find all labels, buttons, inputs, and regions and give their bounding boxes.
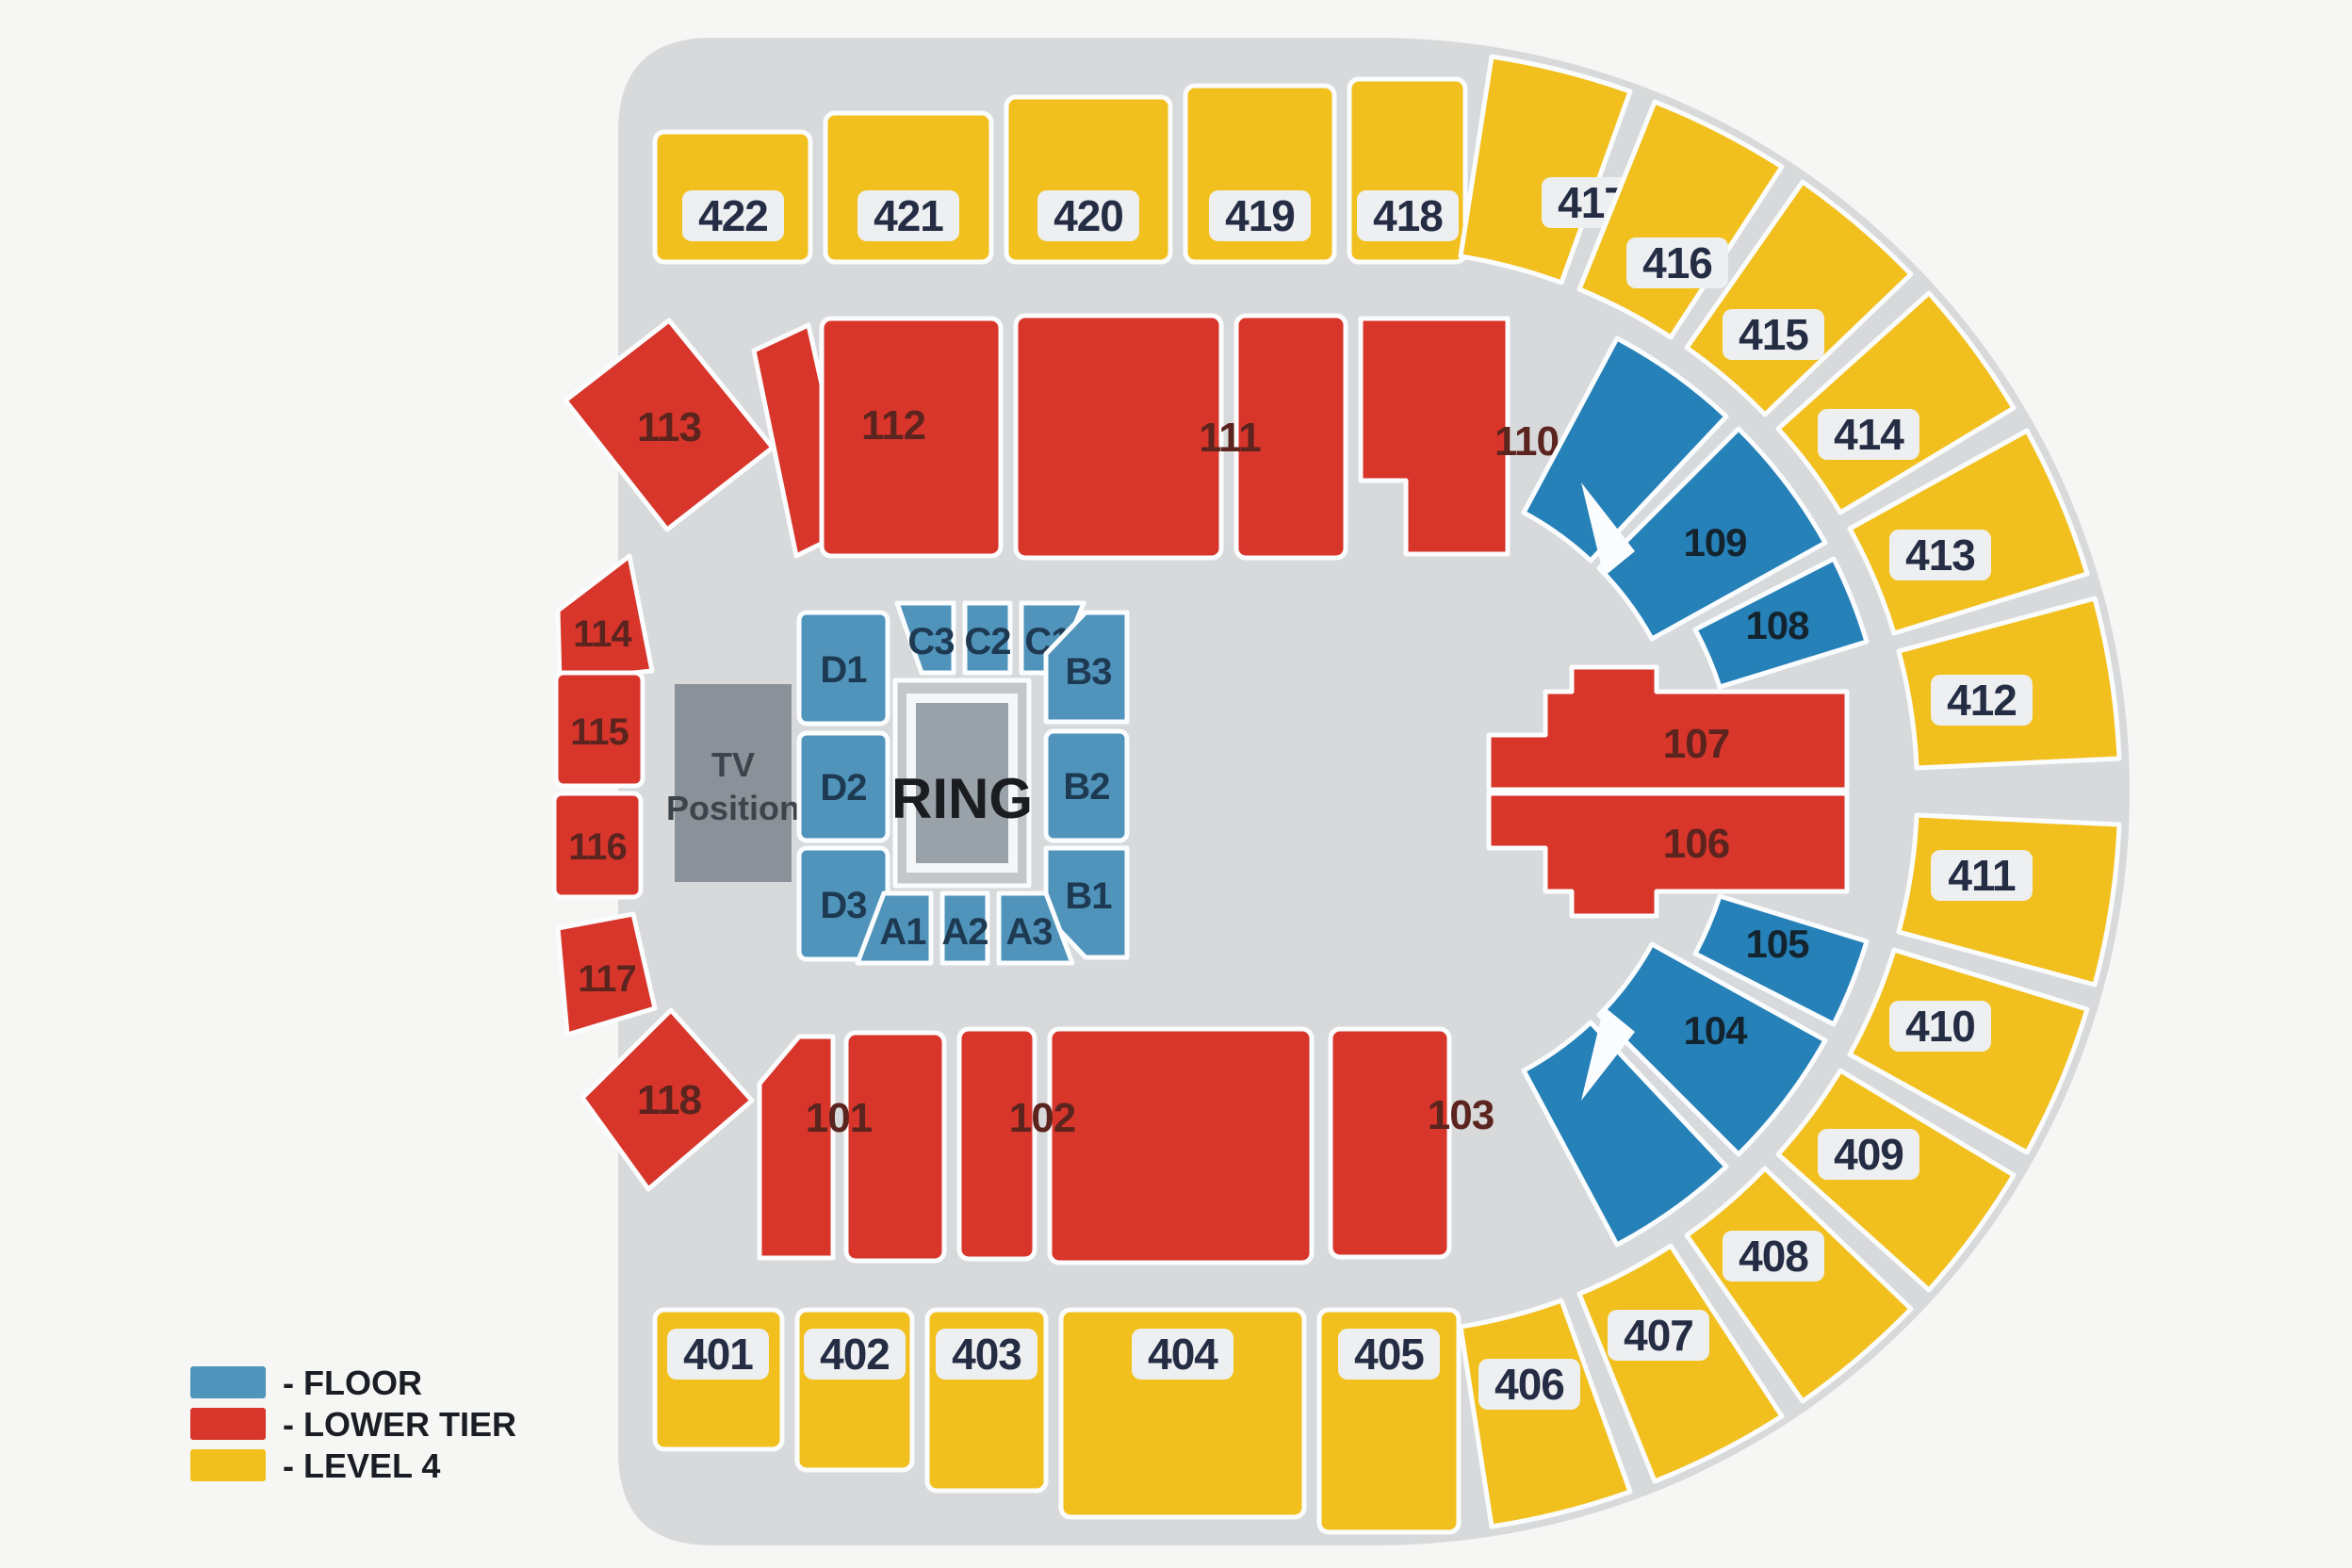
section-B3-label: B3 xyxy=(1065,651,1111,693)
legend-label-level4: - LEVEL 4 xyxy=(283,1446,440,1485)
section-D1[interactable]: D1 xyxy=(799,612,888,724)
section-405[interactable]: 405 xyxy=(1319,1310,1459,1532)
section-B2[interactable]: B2 xyxy=(1046,731,1127,841)
section-412-label: 412 xyxy=(1947,676,2017,725)
section-406-label: 406 xyxy=(1494,1360,1564,1409)
section-404[interactable]: 404 xyxy=(1061,1310,1304,1517)
section-A1-label: A1 xyxy=(879,911,926,953)
section-405-label: 405 xyxy=(1354,1330,1424,1379)
section-421[interactable]: 421 xyxy=(825,113,991,262)
section-B1-label: B1 xyxy=(1065,875,1112,917)
legend-item-level4: - LEVEL 4 xyxy=(190,1446,440,1485)
section-419-label: 419 xyxy=(1225,191,1295,240)
section-408-label: 408 xyxy=(1739,1232,1808,1281)
tv-position: TV Position xyxy=(666,684,800,882)
section-D3-label: D3 xyxy=(820,885,866,926)
section-A3-label: A3 xyxy=(1005,911,1052,953)
arena-svg: 422 421 420 419 418 417 416 415 414 xyxy=(0,0,2352,1568)
section-C2[interactable]: C2 xyxy=(964,603,1010,673)
section-103-label: 103 xyxy=(1428,1092,1494,1138)
section-414-label: 414 xyxy=(1834,410,1904,459)
section-113-label: 113 xyxy=(637,404,701,450)
section-C2-label: C2 xyxy=(964,621,1010,662)
legend-label-floor: - FLOOR xyxy=(283,1364,422,1402)
ring: RING xyxy=(891,680,1033,886)
section-118-label: 118 xyxy=(637,1077,702,1123)
legend-label-lower-tier: - LOWER TIER xyxy=(283,1405,516,1444)
legend-swatch-lower-tier xyxy=(190,1408,266,1440)
section-116[interactable]: 116 xyxy=(554,793,641,897)
section-D2-label: D2 xyxy=(820,767,866,808)
section-421-label: 421 xyxy=(874,191,943,240)
section-410-label: 410 xyxy=(1905,1002,1975,1051)
section-101-label: 101 xyxy=(806,1095,873,1141)
section-A2[interactable]: A2 xyxy=(941,893,988,963)
section-102-label: 102 xyxy=(1009,1095,1075,1141)
legend-swatch-floor xyxy=(190,1366,266,1398)
section-C3-label: C3 xyxy=(907,621,954,662)
section-114-label: 114 xyxy=(573,613,632,655)
section-411-label: 411 xyxy=(1948,851,2016,900)
section-413-label: 413 xyxy=(1905,531,1975,580)
section-112-label: 112 xyxy=(861,402,925,449)
section-415-label: 415 xyxy=(1739,310,1808,359)
section-416-label: 416 xyxy=(1642,238,1712,287)
tv-position-line1: TV xyxy=(711,745,755,784)
section-115[interactable]: 115 xyxy=(556,673,643,786)
seating-map: 422 421 420 419 418 417 416 415 414 xyxy=(0,0,2352,1568)
section-107-label: 107 xyxy=(1663,721,1729,767)
section-403[interactable]: 403 xyxy=(927,1310,1046,1491)
section-A2-label: A2 xyxy=(941,911,988,953)
section-117-label: 117 xyxy=(578,958,636,1000)
section-104-label: 104 xyxy=(1683,1008,1748,1053)
section-418[interactable]: 418 xyxy=(1349,79,1465,262)
section-422-label: 422 xyxy=(698,191,768,240)
section-D1-label: D1 xyxy=(820,649,867,691)
section-404-label: 404 xyxy=(1148,1330,1218,1379)
section-407-label: 407 xyxy=(1624,1311,1693,1360)
section-420[interactable]: 420 xyxy=(1006,97,1170,262)
section-401[interactable]: 401 xyxy=(655,1310,782,1449)
section-D2[interactable]: D2 xyxy=(799,733,888,841)
section-418-label: 418 xyxy=(1373,191,1443,240)
section-115-label: 115 xyxy=(570,711,629,753)
section-402-label: 402 xyxy=(820,1330,890,1379)
section-105-label: 105 xyxy=(1745,922,1809,966)
section-109-label: 109 xyxy=(1683,520,1746,564)
section-402[interactable]: 402 xyxy=(797,1310,912,1470)
section-401-label: 401 xyxy=(683,1330,753,1379)
legend-item-lower-tier: - LOWER TIER xyxy=(190,1405,516,1444)
section-102[interactable]: 102 xyxy=(959,1029,1312,1263)
ring-label: RING xyxy=(891,767,1033,830)
section-108-label: 108 xyxy=(1745,603,1809,647)
section-420-label: 420 xyxy=(1053,191,1123,240)
section-116-label: 116 xyxy=(568,826,627,868)
section-409-label: 409 xyxy=(1834,1130,1903,1179)
legend: - FLOOR - LOWER TIER - LEVEL 4 xyxy=(190,1364,516,1485)
section-403-label: 403 xyxy=(952,1330,1021,1379)
section-110-label: 110 xyxy=(1494,418,1559,465)
section-422[interactable]: 422 xyxy=(655,132,810,262)
legend-item-floor: - FLOOR xyxy=(190,1364,422,1402)
legend-swatch-level4 xyxy=(190,1449,266,1481)
section-419[interactable]: 419 xyxy=(1185,86,1334,262)
section-112[interactable]: 112 xyxy=(754,318,1001,556)
section-111-label: 111 xyxy=(1199,415,1261,461)
section-101[interactable]: 101 xyxy=(759,1033,944,1261)
section-106-label: 106 xyxy=(1663,821,1729,867)
tv-position-line2: Position xyxy=(666,789,800,827)
section-111[interactable]: 111 xyxy=(1016,316,1346,558)
section-B2-label: B2 xyxy=(1063,766,1109,808)
